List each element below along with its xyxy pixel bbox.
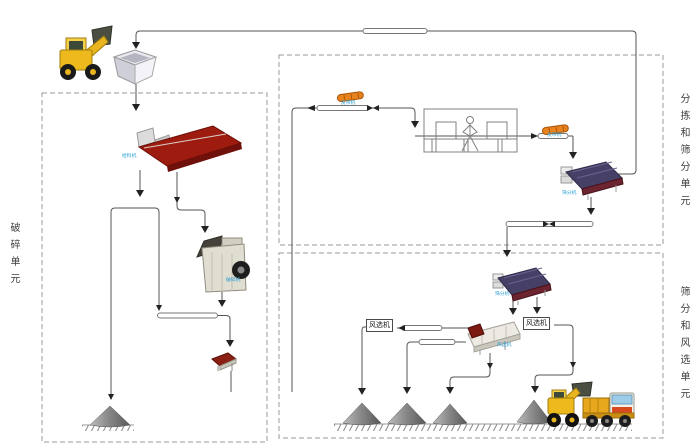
grizzly-feeder-icon xyxy=(137,126,242,172)
feeder-label: 给料机 xyxy=(122,154,136,159)
crusher-label: 破碎机 xyxy=(226,278,240,283)
impact-crusher-icon xyxy=(197,236,250,292)
belt-1-label: 皮带机 xyxy=(341,101,355,106)
crushing-unit-label: 破碎单元 xyxy=(6,222,21,290)
manual-sorting-platform xyxy=(424,109,517,152)
sorting-screening-unit-boundary xyxy=(279,55,663,245)
stockpile-icon xyxy=(517,400,551,424)
air-separation-conveyor-icon xyxy=(468,322,520,355)
stockpile-icon xyxy=(433,404,467,425)
stockpile-icons xyxy=(90,400,551,427)
belt-2-label: 皮带机 xyxy=(547,133,561,138)
air-separator-2-box: 风选机 xyxy=(523,317,550,330)
sorting-screening-unit-label: 分拣和筛分单元 xyxy=(676,93,691,212)
stockpile-icon xyxy=(388,403,426,425)
air-conveyor-label: 风选机 xyxy=(497,343,511,348)
stockpile-icon xyxy=(90,406,130,427)
stockpile-icon xyxy=(343,403,381,425)
dump-truck-icon xyxy=(583,393,634,427)
wheel-loader-icon xyxy=(60,26,112,80)
flow-lines xyxy=(108,29,636,401)
feed-hopper-icon xyxy=(114,50,156,84)
flow-diagram-canvas xyxy=(0,0,700,447)
screen-1-label: 筛分机 xyxy=(562,191,576,196)
air-separator-1-box: 风选机 xyxy=(366,319,393,332)
magnetic-separator-icon xyxy=(212,353,236,371)
vibrating-screen-2-icon xyxy=(493,268,551,305)
process-flow-diagram: 破碎单元 分拣和筛分单元 筛分和风选单元 风选机 风选机 给料机 破碎机 皮带机… xyxy=(0,0,700,447)
screen-2-label: 筛分机 xyxy=(495,292,509,297)
screening-airselect-unit-label: 筛分和风选单元 xyxy=(676,286,691,405)
sorting-worker-figure xyxy=(462,117,478,152)
